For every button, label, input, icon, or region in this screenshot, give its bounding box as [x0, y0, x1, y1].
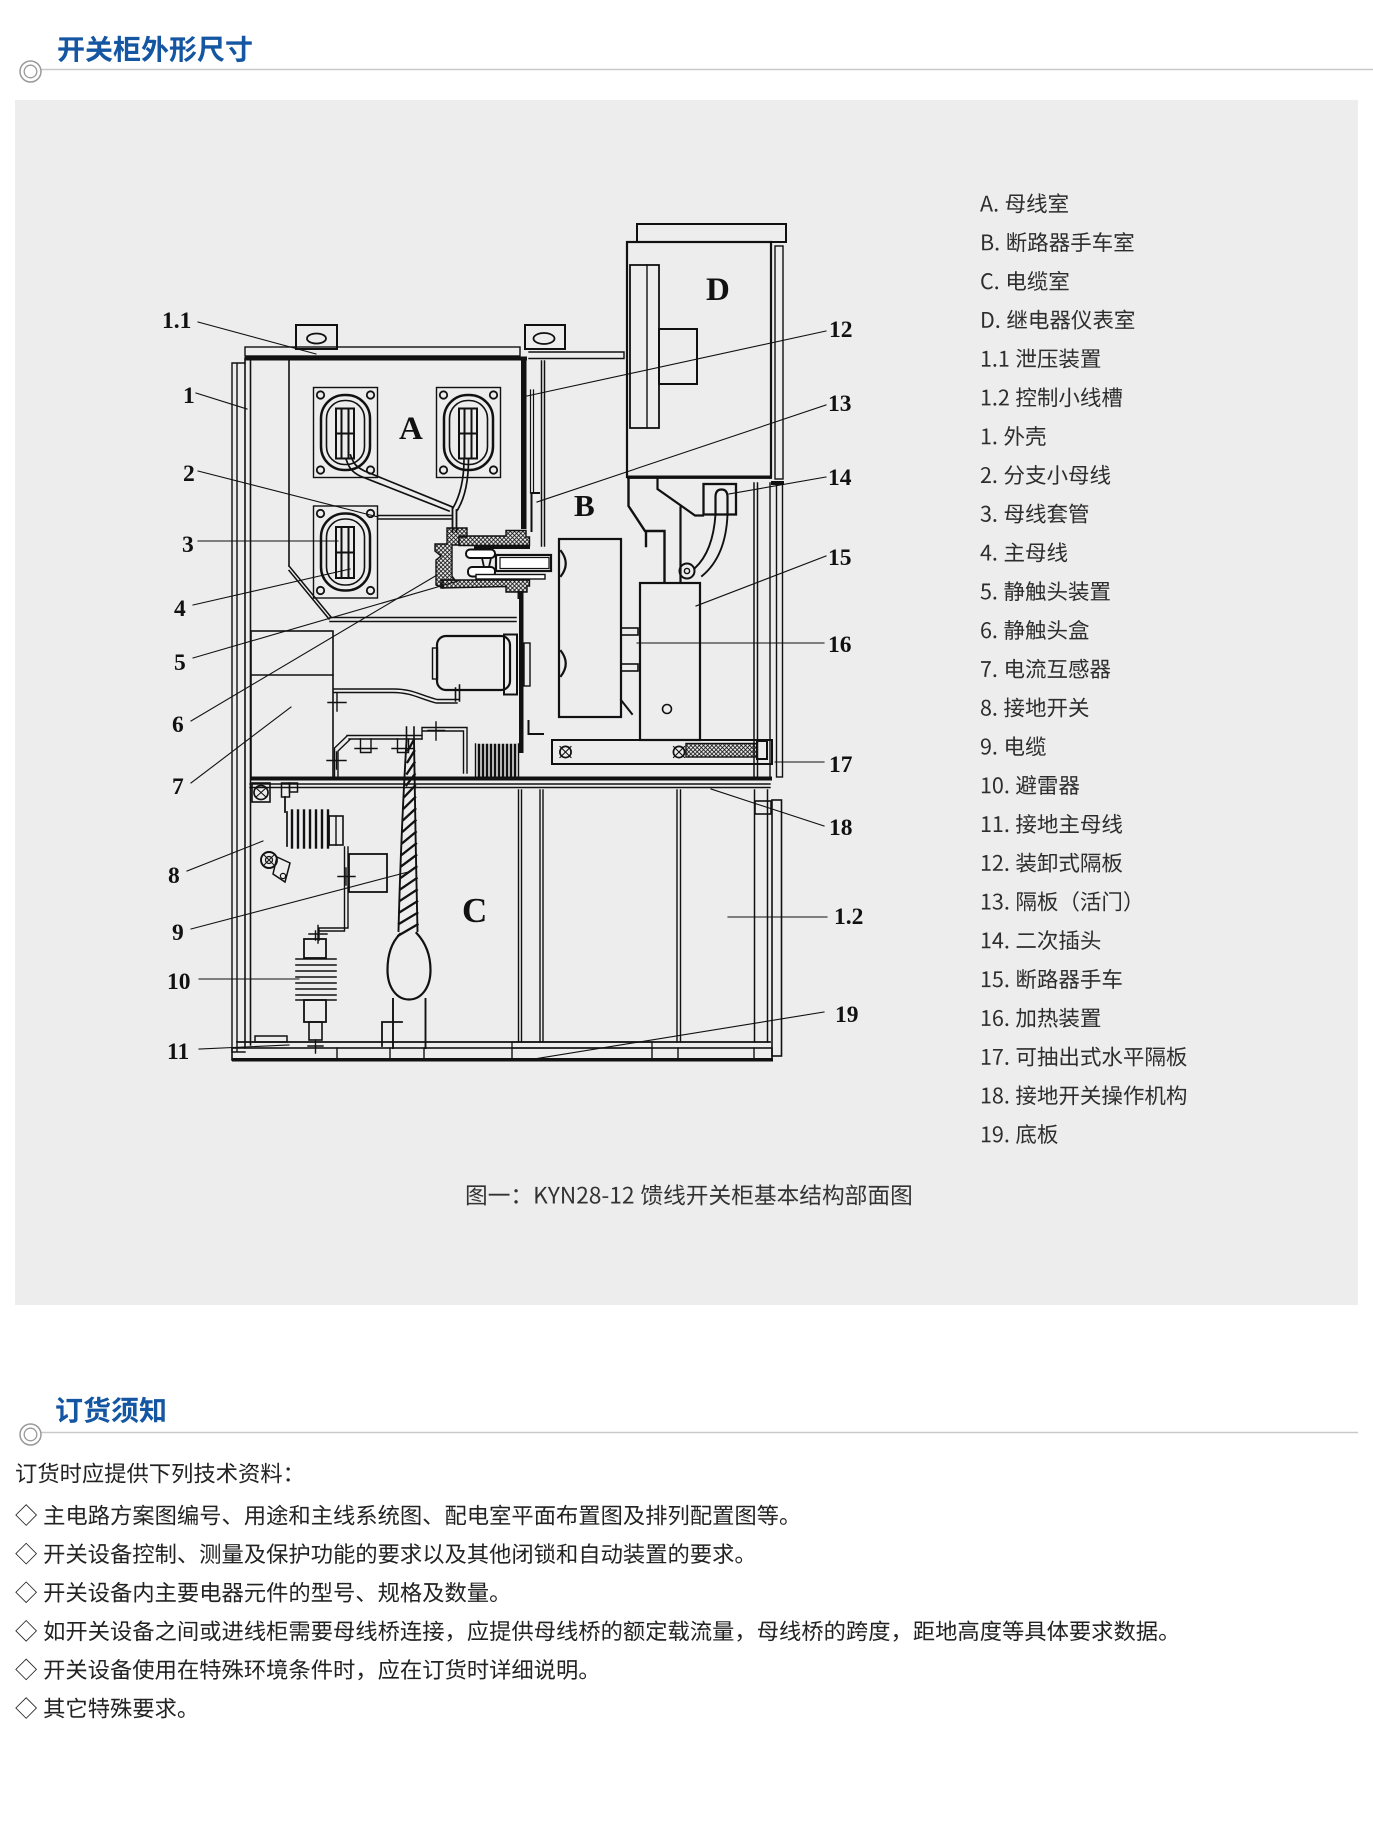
svg-text:A: A — [399, 411, 423, 447]
svg-text:10: 10 — [167, 969, 191, 995]
svg-text:4: 4 — [174, 596, 186, 622]
svg-text:17: 17 — [829, 752, 853, 778]
svg-text:13: 13 — [828, 391, 852, 417]
svg-text:1: 1 — [183, 383, 195, 409]
svg-text:18: 18 — [829, 815, 853, 841]
svg-text:16: 16 — [828, 632, 852, 658]
svg-text:1.2: 1.2 — [834, 904, 863, 930]
svg-text:5: 5 — [174, 650, 186, 676]
svg-text:11: 11 — [167, 1039, 189, 1065]
svg-text:1.1: 1.1 — [162, 308, 191, 334]
svg-text:12: 12 — [829, 317, 853, 343]
svg-text:3: 3 — [182, 532, 194, 558]
svg-text:B: B — [574, 488, 595, 523]
svg-text:C: C — [462, 891, 487, 930]
svg-text:8: 8 — [168, 863, 180, 889]
svg-text:2: 2 — [183, 461, 195, 487]
svg-text:19: 19 — [835, 1002, 859, 1028]
svg-text:6: 6 — [172, 712, 184, 738]
svg-text:15: 15 — [828, 545, 852, 571]
svg-text:14: 14 — [828, 465, 852, 491]
svg-text:9: 9 — [172, 920, 184, 946]
svg-text:D: D — [706, 272, 730, 308]
svg-text:7: 7 — [172, 774, 184, 800]
